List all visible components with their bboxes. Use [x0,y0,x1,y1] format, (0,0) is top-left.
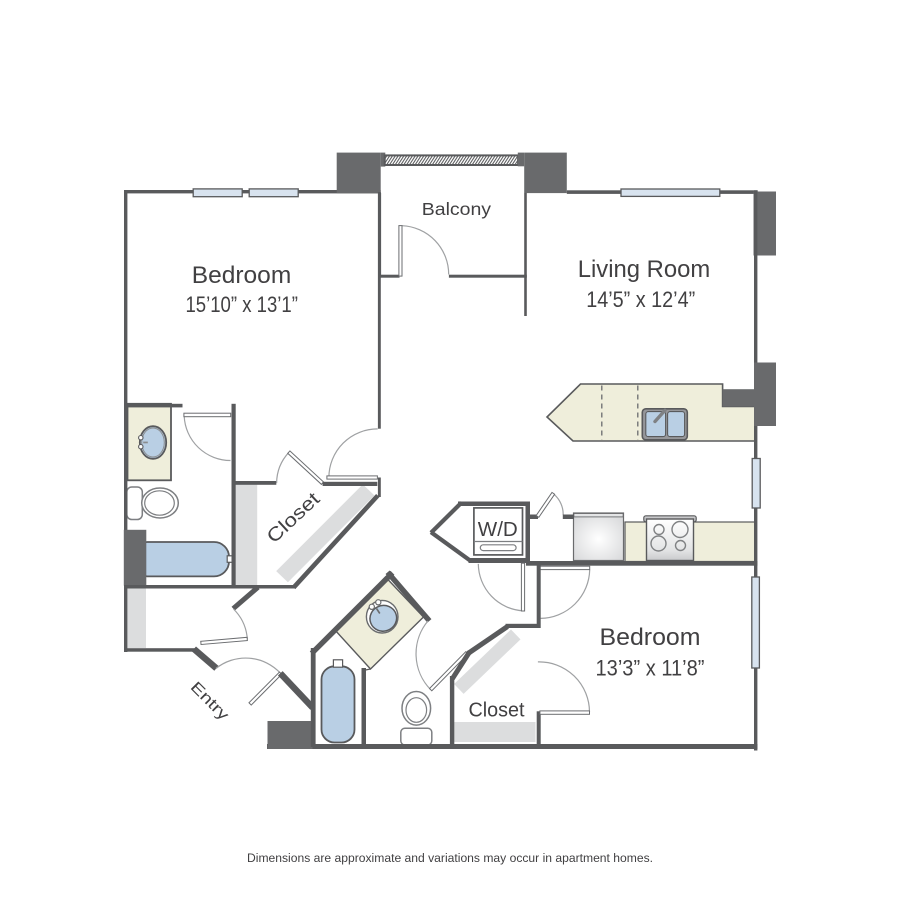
svg-text:W/D: W/D [478,519,518,541]
svg-text:Dimensions are approximate and: Dimensions are approximate and variation… [247,851,653,865]
svg-text:Balcony: Balcony [422,199,492,219]
svg-text:15’10” x 13’1”: 15’10” x 13’1” [185,292,298,317]
svg-text:Bedroom: Bedroom [600,624,701,651]
svg-text:14’5” x 12’4”: 14’5” x 12’4” [586,287,695,312]
svg-text:Living Room: Living Room [578,256,711,283]
svg-text:Bedroom: Bedroom [192,262,292,289]
svg-text:13’3” x 11’8”: 13’3” x 11’8” [596,656,705,681]
svg-text:Closet: Closet [469,699,525,722]
